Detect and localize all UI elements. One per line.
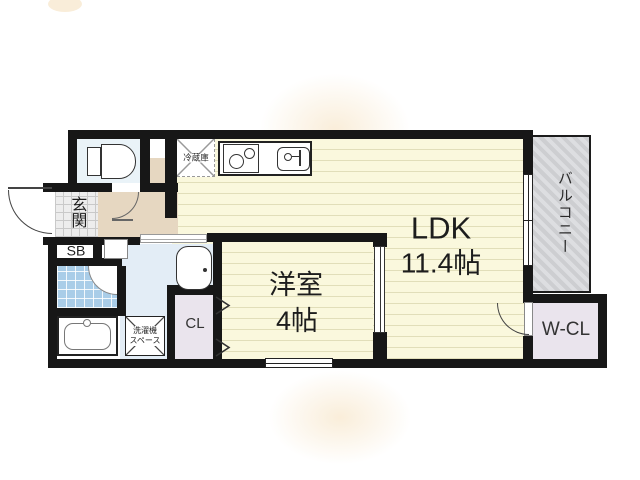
wall <box>117 266 126 316</box>
shoe-box-label: SB <box>67 244 86 259</box>
watermark <box>48 0 82 12</box>
faucet-icon <box>83 319 91 327</box>
window-line <box>141 239 206 240</box>
bath-wall-opening <box>140 234 207 243</box>
laundry-label-line2: スペース <box>129 336 160 345</box>
wall <box>77 183 112 192</box>
wall <box>598 294 607 368</box>
refrigerator-label: 冷蔵庫 <box>182 154 210 163</box>
burner-icon <box>229 154 244 169</box>
basin <box>64 323 111 350</box>
walk-in-closet-label: W-CL <box>542 320 590 340</box>
washroom-door <box>104 239 128 259</box>
toilet-tank <box>87 147 101 176</box>
sliding-door-arrow-icon <box>214 295 231 316</box>
wall <box>373 233 387 247</box>
entrance-door-arc <box>8 190 52 234</box>
laundry-label-line1: 洗濯機 <box>133 326 157 335</box>
wall <box>373 332 387 359</box>
sliding-door-arrow-icon <box>214 337 231 358</box>
wall <box>523 359 607 368</box>
wall <box>167 295 175 359</box>
watermark <box>245 355 435 480</box>
ldk-label: LDK <box>411 213 471 246</box>
stove <box>223 144 259 173</box>
ldk-size-label: 11.4帖 <box>401 248 481 277</box>
entrance-door-leaf <box>8 187 52 189</box>
burner-icon <box>244 148 255 159</box>
ldk-window <box>523 174 533 266</box>
wall <box>207 233 387 242</box>
faucet-icon <box>299 150 301 166</box>
wall <box>532 294 607 303</box>
bathtub <box>176 246 212 290</box>
laundry-label: 洗濯機 スペース <box>129 326 160 346</box>
toilet-bowl-icon <box>101 144 136 179</box>
bedroom-window <box>265 358 333 368</box>
floor-plan: 冷蔵庫 洗濯機 スペース <box>0 0 640 480</box>
sliding-partition <box>374 246 385 333</box>
partition-line <box>380 247 381 332</box>
balcony-label: バルコニー <box>556 171 572 256</box>
wall <box>523 130 533 175</box>
closet-label: CL <box>185 316 204 332</box>
bedroom-label: 洋室 <box>269 271 323 299</box>
drain-icon <box>203 268 207 272</box>
wall <box>48 237 57 359</box>
bedroom-size-label: 4帖 <box>276 307 318 335</box>
kitchen-sink <box>277 147 310 171</box>
wall <box>48 258 122 266</box>
room-bedroom <box>222 242 373 359</box>
wall <box>68 130 532 139</box>
faucet-icon <box>284 153 292 161</box>
window-line <box>524 220 532 221</box>
hallway-door-leaf <box>112 219 133 221</box>
entrance-label: 玄関 <box>68 196 85 228</box>
vanity <box>57 316 118 356</box>
wall <box>523 336 533 359</box>
wall <box>165 130 177 218</box>
window-line <box>266 363 332 364</box>
refrigerator-space: 冷蔵庫 <box>177 139 215 177</box>
wall <box>48 308 126 316</box>
washing-machine-space: 洗濯機 スペース <box>125 316 165 356</box>
